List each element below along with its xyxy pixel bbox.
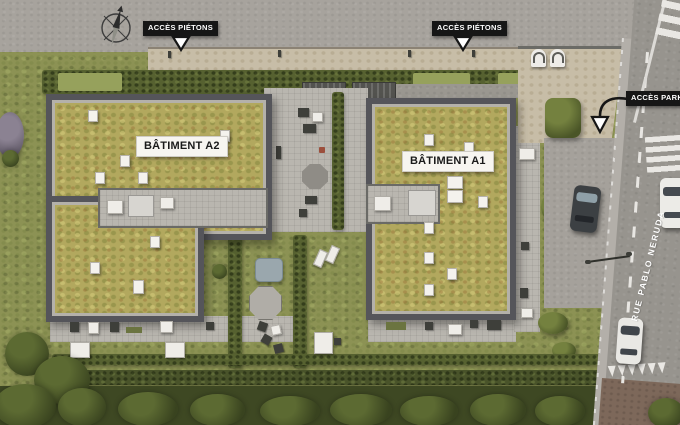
- hedgerow: [38, 370, 610, 385]
- building-a2-label: BÂTIMENT A2: [136, 136, 228, 157]
- shelter-arch-detail: [533, 52, 545, 63]
- upper-walkway: [396, 84, 530, 98]
- apron-furniture: [470, 320, 478, 328]
- skylight: [150, 236, 160, 248]
- skylight: [478, 196, 488, 208]
- car-on-road: [615, 317, 643, 365]
- bush: [538, 312, 568, 334]
- roof-vent: [447, 190, 463, 203]
- terrace-furniture: [299, 209, 307, 217]
- patio-table: [165, 342, 185, 358]
- apron-furniture: [425, 322, 433, 330]
- roof-hatch: [374, 196, 391, 211]
- apron-furniture: [110, 322, 119, 332]
- lounger: [325, 245, 340, 264]
- access-pedestrians-text-2: ACCÈS PIÉTONS: [437, 23, 502, 32]
- street-lamp-head: [585, 260, 591, 264]
- garden-chair: [273, 343, 284, 354]
- shelter-arch: [531, 49, 546, 67]
- car-windshield: [576, 192, 598, 203]
- courtyard-hedge: [228, 235, 242, 368]
- compass-icon: [94, 2, 138, 48]
- yield-tooth-icon: [648, 363, 657, 375]
- tree: [470, 394, 526, 425]
- skylight: [133, 280, 144, 294]
- patio-table: [70, 342, 90, 358]
- apron-furniture: [448, 324, 462, 335]
- lamp-post-icon: [408, 50, 411, 57]
- walkway-furniture: [520, 288, 528, 298]
- walkway-furniture: [519, 148, 535, 160]
- roof-hatch: [408, 190, 436, 216]
- skylight: [424, 222, 434, 234]
- skylight: [424, 284, 434, 296]
- car-windshield: [620, 325, 640, 335]
- lamp-post-icon: [278, 50, 281, 57]
- terrace-furniture: [305, 196, 317, 204]
- tree: [212, 264, 227, 279]
- roof-hatch: [107, 200, 123, 214]
- yield-tooth-icon: [628, 364, 637, 376]
- play-area: [255, 258, 283, 282]
- crosswalk: [645, 135, 680, 173]
- apron-furniture: [88, 322, 99, 334]
- skylight: [88, 110, 98, 122]
- apron-furniture: [487, 320, 501, 330]
- access-pedestrians-text-1: ACCÈS PIÉTONS: [148, 23, 213, 32]
- access-pedestrians-label-2: ACCÈS PIÉTONS: [432, 21, 507, 36]
- yield-tooth-icon: [618, 365, 627, 377]
- building-a2-label-text: BÂTIMENT A2: [144, 140, 220, 152]
- tree: [0, 384, 56, 425]
- yield-tooth-icon: [658, 362, 667, 374]
- tree: [2, 150, 19, 167]
- building-a1-label-text: BÂTIMENT A1: [410, 155, 486, 167]
- terrace-furniture: [303, 124, 316, 133]
- hedgerow: [52, 354, 600, 365]
- entrance-marker-icon: [452, 35, 474, 53]
- tree: [330, 394, 392, 425]
- yield-tooth-icon: [638, 364, 647, 376]
- skylight: [424, 134, 434, 146]
- shelter-arch: [550, 49, 565, 67]
- shelter-arch-detail: [552, 52, 564, 63]
- skylight: [120, 155, 130, 167]
- terrace-hedge: [332, 92, 344, 230]
- grass-patch: [58, 73, 122, 91]
- entrance-marker-icon: [170, 35, 192, 53]
- apron-furniture: [160, 321, 173, 333]
- bush: [545, 98, 581, 138]
- street-lamp-head: [626, 252, 632, 256]
- skylight: [95, 172, 105, 184]
- a2-roof-walkway: [100, 190, 266, 226]
- car-rear-window: [620, 348, 637, 355]
- terrace-furniture: [298, 108, 309, 117]
- planter: [386, 322, 406, 330]
- access-parking-text: ACCÈS PARKING: [631, 93, 680, 102]
- yield-tooth-icon: [608, 366, 617, 378]
- roof-hatch: [160, 197, 174, 209]
- tree: [400, 396, 458, 425]
- tree: [58, 388, 106, 425]
- skylight: [138, 172, 148, 184]
- skylight: [424, 252, 434, 264]
- garden-table: [314, 332, 333, 354]
- parking-arrow-icon: [588, 94, 636, 140]
- planter: [126, 327, 142, 333]
- courtyard-hedge: [293, 235, 307, 368]
- apron-furniture: [70, 322, 79, 332]
- terrace-bench: [276, 146, 281, 159]
- skylight: [90, 262, 100, 274]
- car-rear-window: [574, 215, 594, 223]
- roof-hatch: [128, 195, 154, 217]
- building-a1-label: BÂTIMENT A1: [402, 151, 494, 172]
- car-rear-window: [664, 212, 680, 218]
- terrace-furniture: [312, 112, 323, 122]
- car-windshield: [663, 187, 680, 196]
- central-terrace: [264, 88, 368, 232]
- parked-car: [569, 185, 601, 234]
- roof-vent: [447, 176, 463, 189]
- apron-furniture: [206, 322, 214, 330]
- tree: [648, 398, 680, 425]
- walkway-furniture: [521, 242, 529, 250]
- apron-furniture: [270, 324, 282, 336]
- access-pedestrians-label-1: ACCÈS PIÉTONS: [143, 21, 218, 36]
- site-plan: BÂTIMENT A2 BÂTIMENT A1: [0, 0, 680, 425]
- terrace-furniture: [319, 147, 325, 153]
- skylight: [447, 268, 457, 280]
- tree: [535, 396, 585, 425]
- pergola: [249, 286, 282, 320]
- tree: [260, 396, 320, 425]
- tree: [118, 392, 178, 425]
- tree: [190, 394, 245, 425]
- walkway-furniture: [521, 308, 533, 318]
- garden-chair: [334, 338, 341, 345]
